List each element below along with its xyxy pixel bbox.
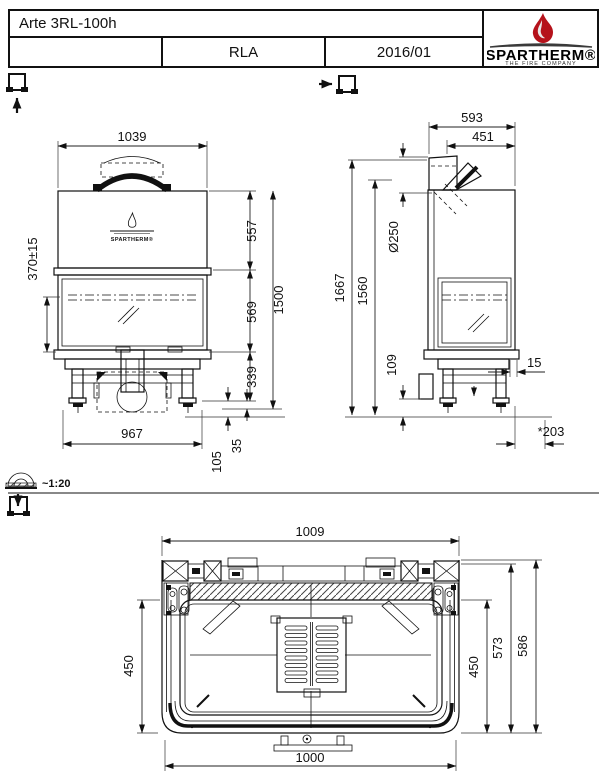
grate-handle — [304, 689, 320, 697]
left-leg — [72, 369, 83, 398]
flue-stub — [429, 156, 457, 190]
dim-flue-diameter: Ø250 — [386, 221, 401, 253]
front-glass-door — [58, 275, 207, 350]
dim-width-top: 1039 — [118, 129, 147, 144]
side-view-drawing: 593 451 Ø250 1667 1560 109 — [332, 110, 564, 449]
drawing-sheet: Arte 3RL-100h RLA 2016/01 SPARTHERM® THE… — [0, 0, 607, 777]
dim-glass-depth-left: 450 — [121, 655, 136, 677]
front-view-drawing: SPARTHERM® — [25, 129, 286, 473]
scale-note: ~1:20 — [42, 478, 70, 490]
dim-depth-total: 586 — [515, 635, 530, 657]
dim-door-height: 569 — [244, 301, 259, 323]
base-rail — [65, 359, 200, 369]
dim-total-height: 1500 — [271, 286, 286, 315]
right-leg — [182, 369, 193, 398]
mini-logo-text: SPARTHERM® — [111, 236, 153, 243]
central-duct — [121, 350, 144, 392]
flue-damper — [456, 167, 477, 188]
front-latch — [274, 735, 352, 751]
hood-base-band — [54, 268, 211, 275]
left-brace — [203, 601, 240, 634]
dim-front-projection: *203 — [538, 424, 565, 439]
glass-reflection — [118, 306, 134, 322]
top-view-icon — [7, 494, 30, 516]
dim-depth-inner: 573 — [490, 637, 505, 659]
top-view-drawing: 1009 450 450 573 586 1000 — [121, 524, 542, 771]
dim-height-flue-center: 1560 — [355, 277, 370, 306]
dim-glass-depth-right: 450 — [466, 656, 481, 678]
dim-glass-offset: 15 — [527, 355, 541, 370]
dim-foot-adjust: 35 — [229, 439, 244, 453]
side-view-icon — [319, 76, 358, 94]
front-view-icon — [6, 74, 28, 113]
side-glass — [438, 278, 511, 347]
handle-arc — [97, 176, 167, 190]
scale-indicator: ~1:20 — [5, 473, 70, 490]
rear-mount-row — [163, 561, 459, 581]
dim-firebed-height: 370±15 — [25, 237, 40, 280]
right-brace — [382, 601, 419, 634]
dim-depth-front: 451 — [472, 129, 494, 144]
dim-width-front: 1000 — [296, 750, 325, 765]
dim-rear-clearance: 109 — [384, 354, 399, 376]
dim-width-body: 1009 — [296, 524, 325, 539]
dim-base-width: 967 — [121, 426, 143, 441]
dim-hood-height: 557 — [244, 220, 259, 242]
door-sill — [54, 350, 211, 359]
air-fan — [117, 382, 147, 412]
dim-base-height: 339 — [244, 366, 259, 388]
hood-body — [58, 191, 207, 268]
dim-base-clearance: 105 — [209, 451, 224, 473]
rear-duct-box — [419, 374, 433, 399]
side-sill — [424, 350, 519, 359]
dim-depth-total: 593 — [461, 110, 483, 125]
technical-drawing: ~1:20 SPARTHERM® — [0, 0, 607, 777]
grate — [271, 616, 352, 697]
dome-outline — [104, 157, 160, 164]
mini-logo: SPARTHERM® — [110, 213, 154, 243]
dim-height-flue-top: 1667 — [332, 274, 347, 303]
